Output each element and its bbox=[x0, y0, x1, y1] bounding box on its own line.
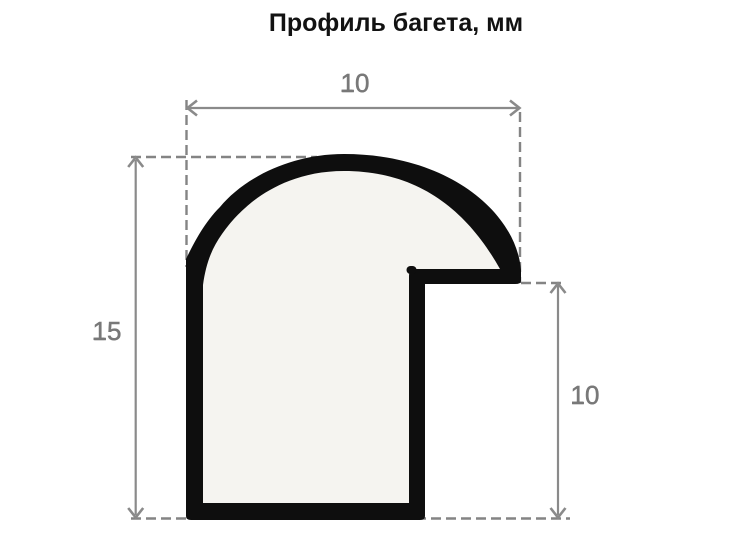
svg-text:10: 10 bbox=[571, 380, 600, 410]
svg-text:Профиль багета, мм: Профиль багета, мм bbox=[269, 9, 523, 37]
svg-text:15: 15 bbox=[93, 316, 122, 346]
svg-text:10: 10 bbox=[341, 68, 370, 98]
